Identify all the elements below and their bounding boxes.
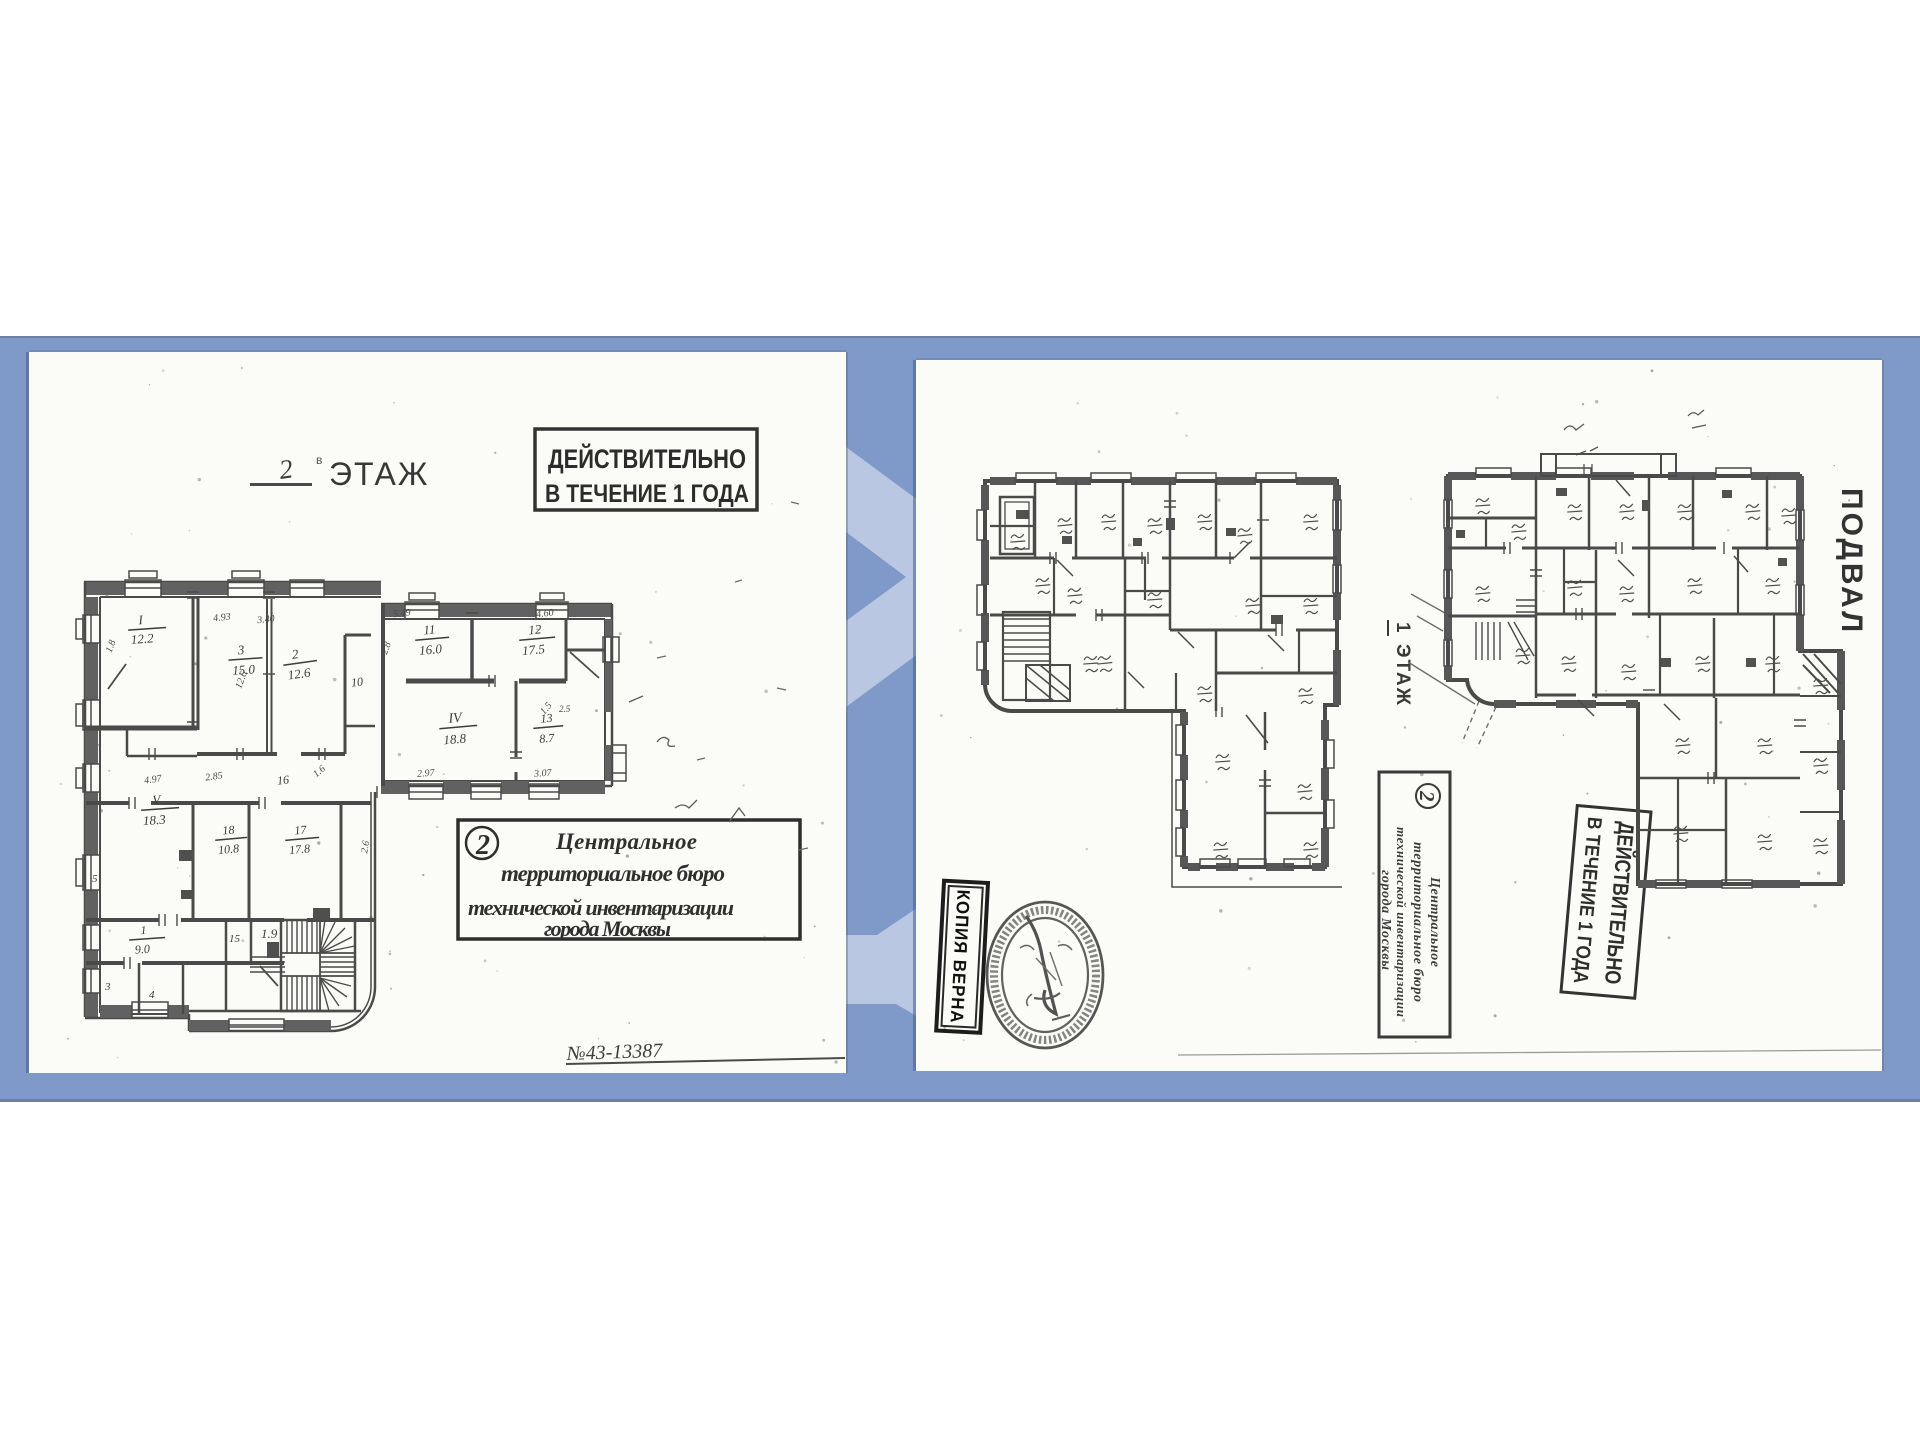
svg-text:города Москвы: города Москвы (1378, 870, 1393, 970)
svg-text:В ТЕЧЕНИЕ 1 ГОДА: В ТЕЧЕНИЕ 1 ГОДА (545, 480, 749, 508)
svg-text:12.6: 12.6 (287, 665, 312, 683)
svg-text:16.0: 16.0 (418, 641, 442, 658)
svg-text:1: 1 (140, 923, 147, 937)
svg-text:8.7: 8.7 (539, 731, 556, 746)
svg-text:2.6: 2.6 (359, 840, 372, 854)
svg-text:2.5: 2.5 (559, 704, 571, 714)
svg-text:ДЕЙСТВИТЕЛЬНО: ДЕЙСТВИТЕЛЬНО (548, 443, 746, 474)
svg-text:1.8: 1.8 (104, 639, 119, 655)
svg-text:17.5: 17.5 (521, 641, 545, 658)
svg-text:технической инвентаризации: технической инвентаризации (1394, 827, 1409, 1017)
svg-text:I: I (137, 612, 144, 627)
svg-text:2.97: 2.97 (417, 768, 436, 780)
svg-text:КОПИЯ ВЕРНА: КОПИЯ ВЕРНА (947, 889, 974, 1024)
svg-text:16: 16 (276, 772, 289, 787)
svg-text:18.8: 18.8 (443, 730, 467, 747)
svg-text:3.07: 3.07 (533, 768, 553, 780)
svg-text:17: 17 (294, 822, 308, 837)
svg-text:3: 3 (104, 981, 111, 993)
svg-text:5.49: 5.49 (393, 607, 412, 620)
svg-text:Центральное: Центральное (1427, 876, 1442, 967)
svg-text:10.8: 10.8 (217, 841, 239, 857)
svg-text:города Москвы: города Москвы (544, 916, 671, 941)
svg-text:в: в (316, 453, 322, 467)
svg-text:2: 2 (475, 830, 490, 861)
svg-text:2: 2 (291, 646, 300, 662)
svg-text:ПОДВАЛ: ПОДВАЛ (1835, 488, 1868, 635)
svg-text:11: 11 (423, 621, 436, 637)
svg-text:3.40: 3.40 (256, 613, 276, 626)
svg-text:4.60: 4.60 (536, 607, 555, 620)
svg-text:ДЕЙСТВИТЕЛЬНО: ДЕЙСТВИТЕЛЬНО (1600, 821, 1639, 986)
svg-text:территориальное бюро: территориальное бюро (1410, 842, 1425, 1002)
svg-text:2: 2 (1415, 790, 1439, 802)
svg-text:IV: IV (447, 711, 464, 727)
svg-text:17.8: 17.8 (288, 841, 310, 857)
svg-text:2: 2 (277, 453, 295, 485)
svg-text:V: V (152, 792, 163, 808)
svg-text:ЭТАЖ: ЭТАЖ (329, 456, 429, 492)
svg-text:18: 18 (222, 823, 235, 838)
svg-text:10: 10 (350, 674, 363, 689)
svg-text:1.6: 1.6 (311, 763, 328, 779)
svg-text:Центральное: Центральное (555, 829, 697, 854)
svg-text:5: 5 (92, 873, 98, 885)
svg-text:4: 4 (149, 989, 155, 1001)
svg-text:12.2: 12.2 (130, 630, 154, 647)
svg-text:12: 12 (528, 621, 543, 637)
svg-text:4.93: 4.93 (213, 611, 232, 624)
svg-text:ЭТАЖ: ЭТАЖ (1392, 644, 1413, 707)
svg-text:15: 15 (229, 933, 241, 945)
svg-text:18.3: 18.3 (142, 812, 166, 829)
svg-text:3: 3 (236, 642, 245, 658)
svg-text:2.85: 2.85 (205, 770, 224, 783)
svg-text:территориальное бюро: территориальное бюро (501, 861, 725, 886)
svg-text:1.9: 1.9 (261, 926, 278, 941)
svg-text:9.0: 9.0 (134, 942, 150, 957)
svg-text:4.97: 4.97 (144, 773, 164, 786)
svg-text:1: 1 (1392, 622, 1413, 635)
